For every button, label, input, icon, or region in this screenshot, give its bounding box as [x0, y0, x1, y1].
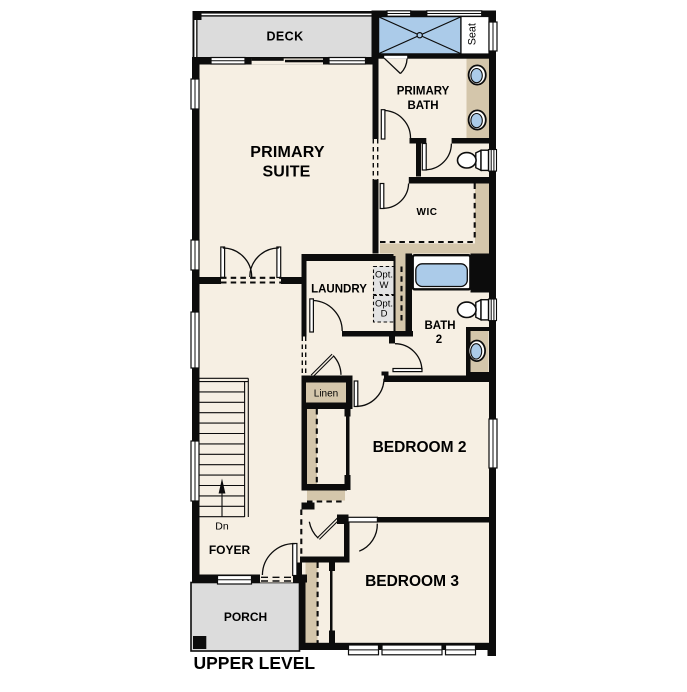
svg-text:PRIMARY: PRIMARY [250, 144, 325, 161]
svg-text:D: D [381, 309, 388, 320]
svg-text:UPPER LEVEL: UPPER LEVEL [194, 653, 316, 673]
svg-text:Linen: Linen [314, 389, 338, 400]
svg-text:PRIMARY: PRIMARY [397, 86, 450, 98]
svg-text:W: W [380, 280, 389, 291]
svg-text:BEDROOM 3: BEDROOM 3 [365, 573, 459, 590]
svg-text:FOYER: FOYER [209, 543, 251, 557]
svg-text:BATH: BATH [424, 320, 455, 332]
svg-text:SUITE: SUITE [262, 164, 310, 181]
svg-text:WIC: WIC [417, 207, 438, 218]
svg-text:LAUNDRY: LAUNDRY [311, 284, 367, 296]
svg-text:Opt.: Opt. [375, 270, 393, 281]
svg-text:BATH: BATH [407, 100, 438, 112]
svg-text:PORCH: PORCH [224, 610, 267, 624]
svg-text:DECK: DECK [266, 29, 303, 43]
svg-text:Seat: Seat [467, 23, 479, 45]
svg-text:BEDROOM 2: BEDROOM 2 [373, 439, 467, 456]
svg-text:2: 2 [436, 334, 442, 346]
svg-text:Dn: Dn [215, 521, 229, 533]
